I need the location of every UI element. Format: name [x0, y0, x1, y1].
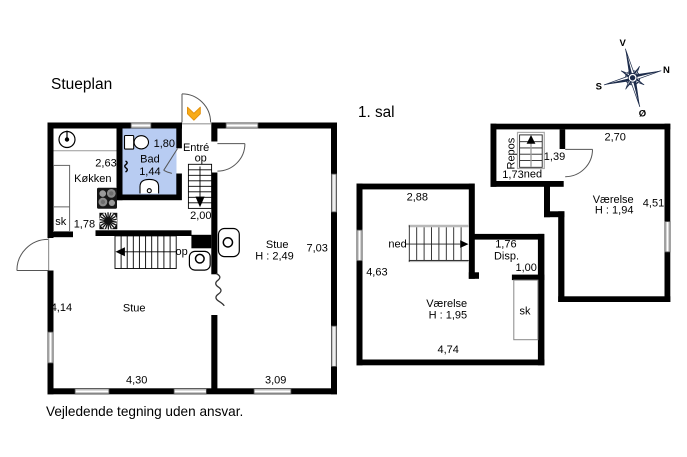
svg-text:op: op — [195, 153, 207, 165]
svg-text:1. sal: 1. sal — [358, 104, 395, 121]
svg-text:ned: ned — [524, 168, 542, 180]
svg-text:N: N — [663, 65, 670, 76]
svg-text:S: S — [596, 82, 602, 93]
svg-text:3,09: 3,09 — [265, 375, 286, 387]
svg-text:Stueplan: Stueplan — [51, 76, 112, 93]
svg-text:sk: sk — [55, 216, 67, 228]
svg-text:H : 1,95: H : 1,95 — [429, 310, 468, 322]
svg-text:1,80: 1,80 — [154, 138, 175, 150]
svg-text:ned: ned — [388, 239, 406, 251]
svg-text:1,76: 1,76 — [495, 238, 516, 250]
svg-text:1,78: 1,78 — [74, 219, 95, 231]
svg-text:H : 1,94: H : 1,94 — [595, 205, 634, 217]
svg-text:2,63: 2,63 — [95, 157, 116, 169]
svg-text:Repos: Repos — [506, 137, 518, 169]
svg-text:Bad: Bad — [140, 153, 160, 165]
svg-text:4,51: 4,51 — [643, 198, 664, 210]
svg-text:Ø: Ø — [639, 109, 646, 120]
svg-text:2,88: 2,88 — [407, 192, 428, 204]
svg-text:4,74: 4,74 — [437, 344, 458, 356]
svg-text:1,44: 1,44 — [139, 166, 160, 178]
svg-text:2,70: 2,70 — [604, 131, 625, 143]
svg-text:Stue: Stue — [266, 239, 289, 251]
svg-text:Køkken: Køkken — [74, 173, 111, 185]
svg-text:1,00: 1,00 — [515, 262, 536, 274]
svg-text:4,63: 4,63 — [366, 267, 387, 279]
svg-text:1,73: 1,73 — [502, 169, 523, 181]
svg-text:4,14: 4,14 — [51, 302, 72, 314]
svg-text:1,39: 1,39 — [544, 151, 565, 163]
svg-text:sk: sk — [520, 306, 532, 318]
svg-text:V: V — [620, 38, 627, 49]
svg-text:H : 2,49: H : 2,49 — [255, 251, 294, 263]
svg-text:2,00: 2,00 — [190, 210, 211, 222]
svg-text:4,30: 4,30 — [126, 375, 147, 387]
svg-text:Stue: Stue — [123, 303, 146, 315]
svg-text:op: op — [175, 246, 187, 258]
svg-text:Disp.: Disp. — [494, 250, 519, 262]
svg-text:Værelse: Værelse — [426, 298, 467, 310]
svg-text:Vejledende tegning uden ansvar: Vejledende tegning uden ansvar. — [46, 404, 243, 419]
svg-text:7,03: 7,03 — [306, 242, 327, 254]
